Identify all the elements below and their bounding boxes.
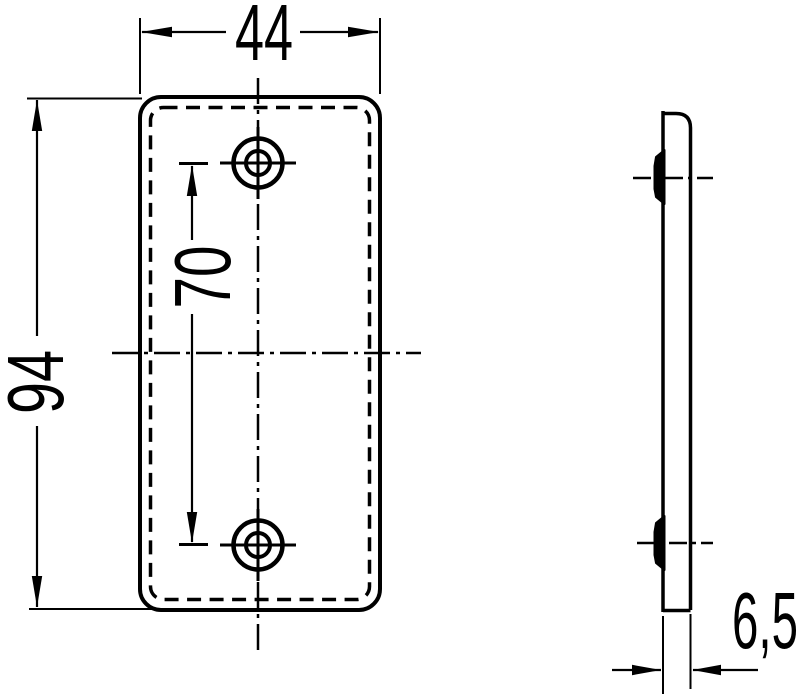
technical-drawing: 44 94 70 [0, 0, 800, 697]
lower-mounting-hole [220, 509, 296, 581]
thickness-dimension-label: 6,5 [732, 576, 798, 665]
side-top-edge [663, 114, 691, 129]
width-arrow-left [141, 27, 172, 37]
dimension-thickness: 6,5 [612, 576, 798, 694]
hole-spacing-arrow-bottom [187, 512, 197, 543]
thickness-arrow-left [632, 665, 661, 675]
side-view: 6,5 [612, 111, 798, 694]
upper-mounting-hole [220, 127, 296, 199]
dimension-width: 44 [140, 0, 380, 94]
hole-spacing-dimension-label: 70 [158, 246, 247, 309]
height-arrow-bottom [32, 576, 42, 607]
drawing-canvas: 44 94 70 [0, 0, 800, 697]
width-dimension-label: 44 [235, 0, 293, 77]
hole-spacing-arrow-top [187, 165, 197, 196]
thickness-arrow-right [693, 665, 722, 675]
height-arrow-top [32, 100, 42, 131]
width-arrow-right [348, 27, 379, 37]
height-dimension-label: 94 [0, 350, 80, 414]
front-view: 44 94 70 [0, 0, 421, 656]
